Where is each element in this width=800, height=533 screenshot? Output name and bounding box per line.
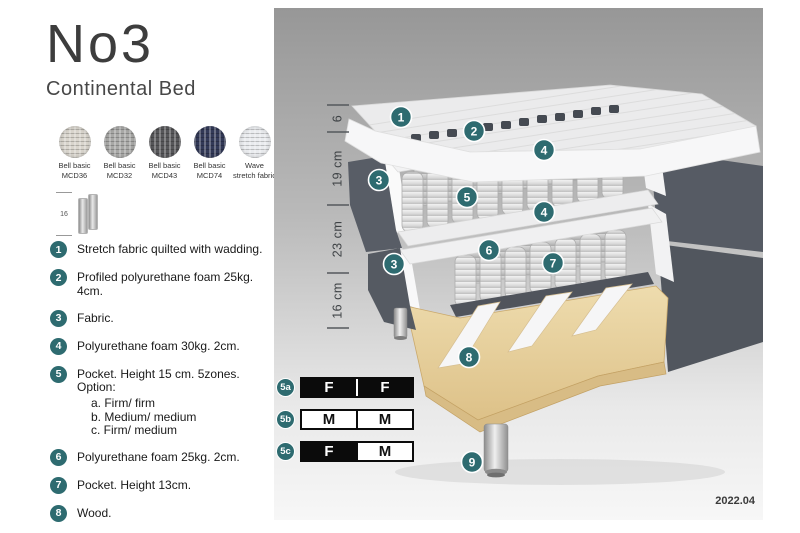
swatch-mcd36: Bell basicMCD36 [52, 126, 97, 181]
dim-label-leg: 16 cm [331, 282, 345, 319]
legend-item-2: 2 Profiled polyurethane foam 25kg. 4cm. [50, 269, 278, 299]
dim-label-topper: 6 [331, 115, 345, 122]
number-badge: 4 [50, 338, 67, 355]
option-badge: 5b [276, 410, 295, 429]
firmness-table: 5a F F 5b M M 5c F M [276, 377, 414, 473]
svg-text:2: 2 [471, 125, 478, 139]
svg-text:1: 1 [398, 111, 405, 125]
legend-item-8: 8 Wood. [50, 505, 278, 522]
callout-5: 5 [457, 187, 478, 208]
callout-3-upper: 3 [369, 170, 390, 191]
firmness-cell: M [356, 411, 412, 428]
page-subtitle: Continental Bed [46, 78, 196, 101]
firmness-cell: F [356, 379, 412, 396]
bed-shadow [395, 459, 725, 485]
legend-item-5: 5 Pocket. Height 15 cm. 5zones. Option: … [50, 366, 278, 438]
number-badge: 2 [50, 269, 67, 286]
swatch-mcd74: Bell basicMCD74 [187, 126, 232, 181]
product-sheet: No3 Continental Bed Bell basicMCD36 Bell… [0, 0, 800, 533]
svg-text:4: 4 [541, 206, 548, 220]
firmness-cell: M [302, 411, 356, 428]
legend-item-4: 4 Polyurethane foam 30kg. 2cm. [50, 338, 278, 355]
fabric-swatch-icon [59, 126, 91, 158]
metal-leg-icon [78, 198, 88, 234]
swatch-wave: Wavestretch fabric [232, 126, 277, 181]
callout-6: 6 [479, 240, 500, 261]
dim-label-lower: 23 cm [331, 221, 345, 258]
firmness-cell: F [302, 379, 356, 396]
fabric-swatch-icon [149, 126, 181, 158]
firmness-cell: M [356, 443, 412, 460]
number-badge: 5 [50, 366, 67, 383]
legend-item-1: 1 Stretch fabric quilted with wadding. [50, 241, 278, 258]
swatch-mcd43: Bell basicMCD43 [142, 126, 187, 181]
wood-slat-base [406, 284, 668, 432]
number-badge: 6 [50, 449, 67, 466]
page-title: No3 [46, 16, 196, 73]
fabric-swatch-icon [239, 126, 271, 158]
legend-item-6: 6 Polyurethane foam 25kg. 2cm. [50, 449, 278, 466]
fabric-swatches: Bell basicMCD36 Bell basicMCD32 Bell bas… [52, 126, 277, 181]
svg-text:5: 5 [464, 191, 471, 205]
svg-text:3: 3 [376, 174, 383, 188]
parts-legend: 1 Stretch fabric quilted with wadding. 2… [50, 241, 278, 533]
leg-thumbnail: 16 [56, 188, 118, 242]
callout-4-lower: 4 [534, 202, 555, 223]
fabric-swatch-icon [104, 126, 136, 158]
pocket-options: a. Firm/ firm b. Medium/ medium c. Firm/… [91, 397, 278, 438]
svg-text:4: 4 [541, 144, 548, 158]
legend-item-7: 7 Pocket. Height 13cm. [50, 477, 278, 494]
callout-2: 2 [464, 121, 485, 142]
svg-text:9: 9 [469, 456, 476, 470]
illustration-panel: 6 19 cm 23 cm 16 cm 1 2 4 3 5 4 6 7 3 8 … [274, 8, 763, 520]
number-badge: 8 [50, 505, 67, 522]
svg-text:3: 3 [391, 258, 398, 272]
firmness-row-5c: 5c F M [276, 441, 414, 462]
fabric-swatch-icon [194, 126, 226, 158]
svg-text:6: 6 [486, 244, 493, 258]
callout-7: 7 [543, 253, 564, 274]
option-badge: 5a [276, 378, 295, 397]
number-badge: 3 [50, 310, 67, 327]
number-badge: 1 [50, 241, 67, 258]
firmness-cell: F [302, 443, 356, 460]
firmness-row-5a: 5a F F [276, 377, 414, 398]
title-block: No3 Continental Bed [46, 16, 196, 101]
svg-text:7: 7 [550, 257, 557, 271]
metal-leg-icon [88, 194, 98, 230]
legend-item-3: 3 Fabric. [50, 310, 278, 327]
swatch-mcd32: Bell basicMCD32 [97, 126, 142, 181]
callout-1: 1 [391, 107, 412, 128]
number-badge: 7 [50, 477, 67, 494]
version-label: 2022.04 [715, 495, 755, 507]
leg-height-dimension: 16 [56, 192, 72, 236]
dim-label-middle: 19 cm [331, 150, 345, 187]
callout-4-upper: 4 [534, 140, 555, 161]
callout-8: 8 [459, 347, 480, 368]
firmness-row-5b: 5b M M [276, 409, 414, 430]
callout-3-lower: 3 [384, 254, 405, 275]
svg-text:8: 8 [466, 351, 473, 365]
callout-9: 9 [462, 452, 483, 473]
option-badge: 5c [276, 442, 295, 461]
